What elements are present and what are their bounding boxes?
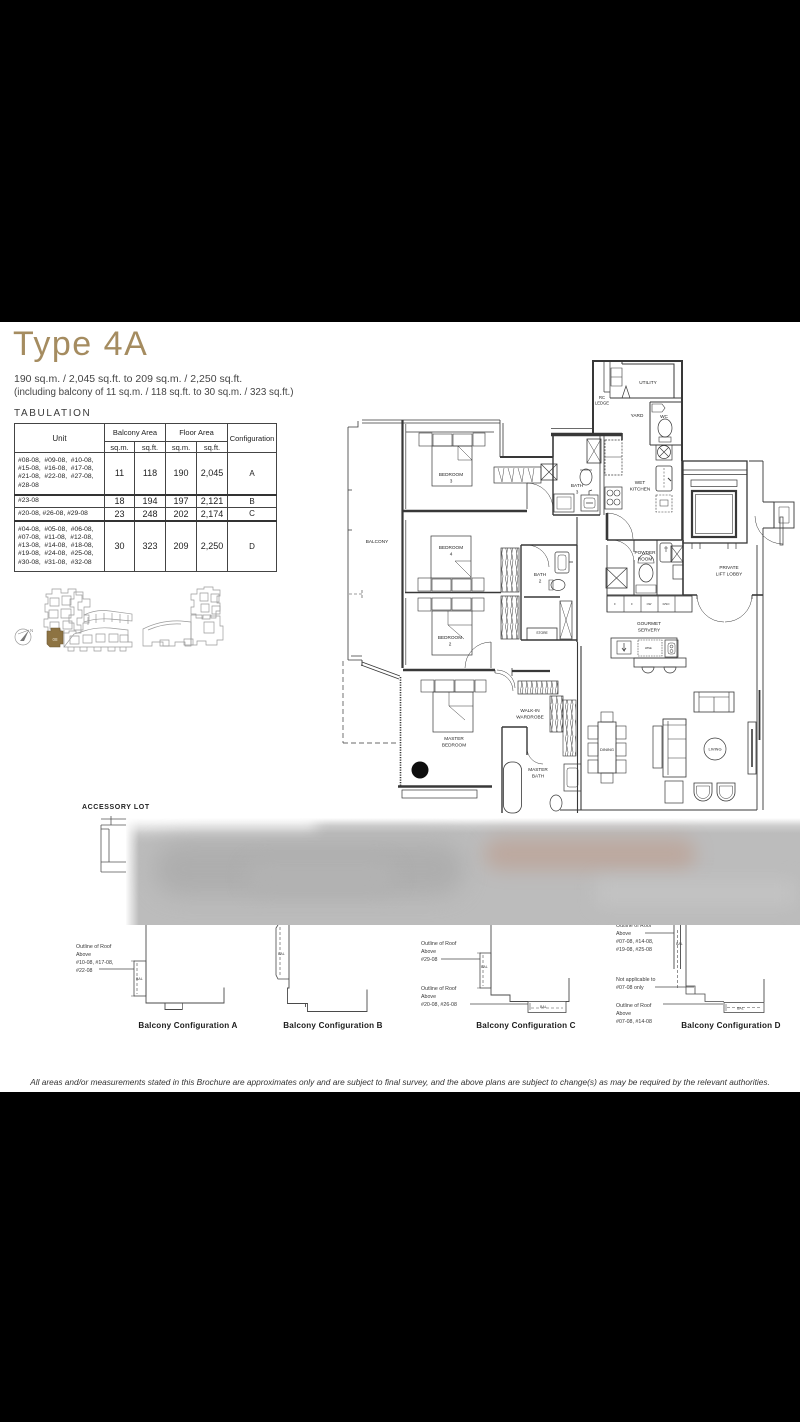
svg-text:BAL: BAL [481, 965, 488, 969]
svg-text:#07-08 only: #07-08 only [616, 985, 644, 991]
svg-text:4: 4 [450, 552, 453, 557]
svg-text:08: 08 [52, 637, 58, 642]
svg-text:BEDROOM: BEDROOM [438, 635, 462, 640]
svg-text:SERVERY: SERVERY [638, 628, 661, 633]
svg-text:MASTER: MASTER [444, 736, 464, 741]
svg-text:OW: OW [647, 602, 652, 606]
svg-text:F: F [614, 602, 616, 606]
svg-text:BATH: BATH [571, 483, 583, 488]
svg-text:#20-08, #26-08: #20-08, #26-08 [421, 1002, 457, 1008]
svg-text:BAL: BAL [136, 977, 143, 981]
svg-text:RC: RC [599, 395, 605, 400]
svg-text:#07-08, #14-08: #07-08, #14-08 [616, 1019, 652, 1025]
svg-text:3: 3 [450, 479, 453, 484]
svg-text:UTILITY: UTILITY [639, 380, 657, 385]
svg-text:2: 2 [539, 579, 542, 584]
svg-text:STORE: STORE [536, 631, 548, 635]
svg-text:Outline of Roof: Outline of Roof [76, 944, 112, 950]
svg-text:#29-08: #29-08 [421, 957, 438, 963]
svg-text:#22-08: #22-08 [76, 968, 93, 974]
svg-text:WET: WET [635, 480, 646, 485]
svg-text:WALK-IN: WALK-IN [520, 708, 539, 713]
svg-text:Outline of Roof: Outline of Roof [421, 941, 457, 947]
svg-text:BALCONY: BALCONY [366, 539, 389, 544]
svg-text:LEDGE: LEDGE [595, 401, 609, 406]
svg-text:BEDROOM: BEDROOM [439, 472, 463, 477]
svg-text:D/SO: D/SO [663, 602, 671, 606]
svg-text:LIFT LOBBY: LIFT LOBBY [716, 572, 743, 577]
svg-text:DINING: DINING [600, 747, 614, 752]
svg-text:N: N [30, 628, 33, 633]
svg-text:BATH: BATH [534, 572, 546, 577]
svg-text:WINE: WINE [645, 646, 652, 650]
svg-text:2: 2 [449, 642, 452, 647]
svg-text:BEDROOM: BEDROOM [442, 743, 466, 748]
svg-text:Above: Above [616, 931, 631, 937]
svg-text:Not applicable to: Not applicable to [616, 977, 656, 983]
svg-text:Balcony Configuration A: Balcony Configuration A [138, 1021, 237, 1030]
svg-text:Balcony Configuration B: Balcony Configuration B [283, 1021, 382, 1030]
svg-text:Outline of Roof: Outline of Roof [616, 1003, 652, 1009]
svg-text:Above: Above [421, 949, 436, 955]
svg-text:Balcony Configuration C: Balcony Configuration C [476, 1021, 575, 1030]
svg-text:WC: WC [660, 414, 668, 419]
svg-text:Above: Above [421, 994, 436, 1000]
svg-text:#19-08, #25-08: #19-08, #25-08 [616, 947, 652, 953]
svg-text:BAL: BAL [540, 1005, 547, 1009]
svg-text:#07-08, #14-08,: #07-08, #14-08, [616, 939, 653, 945]
svg-text:#10-08, #17-08,: #10-08, #17-08, [76, 960, 113, 966]
svg-text:GOURMET: GOURMET [637, 621, 661, 626]
svg-text:BAL: BAL [737, 1007, 744, 1011]
svg-text:Balcony Configuration D: Balcony Configuration D [681, 1021, 780, 1030]
svg-text:BAL: BAL [676, 942, 683, 946]
svg-text:F: F [631, 602, 633, 606]
svg-text:YARD: YARD [631, 413, 644, 418]
svg-text:WARDROBE: WARDROBE [516, 715, 543, 720]
svg-text:Outline of Roof: Outline of Roof [421, 986, 457, 992]
svg-text:LIVING: LIVING [708, 747, 721, 752]
svg-text:BAL: BAL [278, 952, 285, 956]
svg-text:PRIVATE: PRIVATE [719, 565, 738, 570]
svg-text:BATH: BATH [532, 774, 544, 779]
svg-text:MASTER: MASTER [528, 767, 548, 772]
svg-text:Above: Above [76, 952, 91, 958]
svg-text:Above: Above [616, 1011, 631, 1017]
svg-text:KITCHEN: KITCHEN [630, 487, 651, 492]
svg-text:3: 3 [576, 490, 579, 495]
svg-text:BEDROOM: BEDROOM [439, 545, 463, 550]
